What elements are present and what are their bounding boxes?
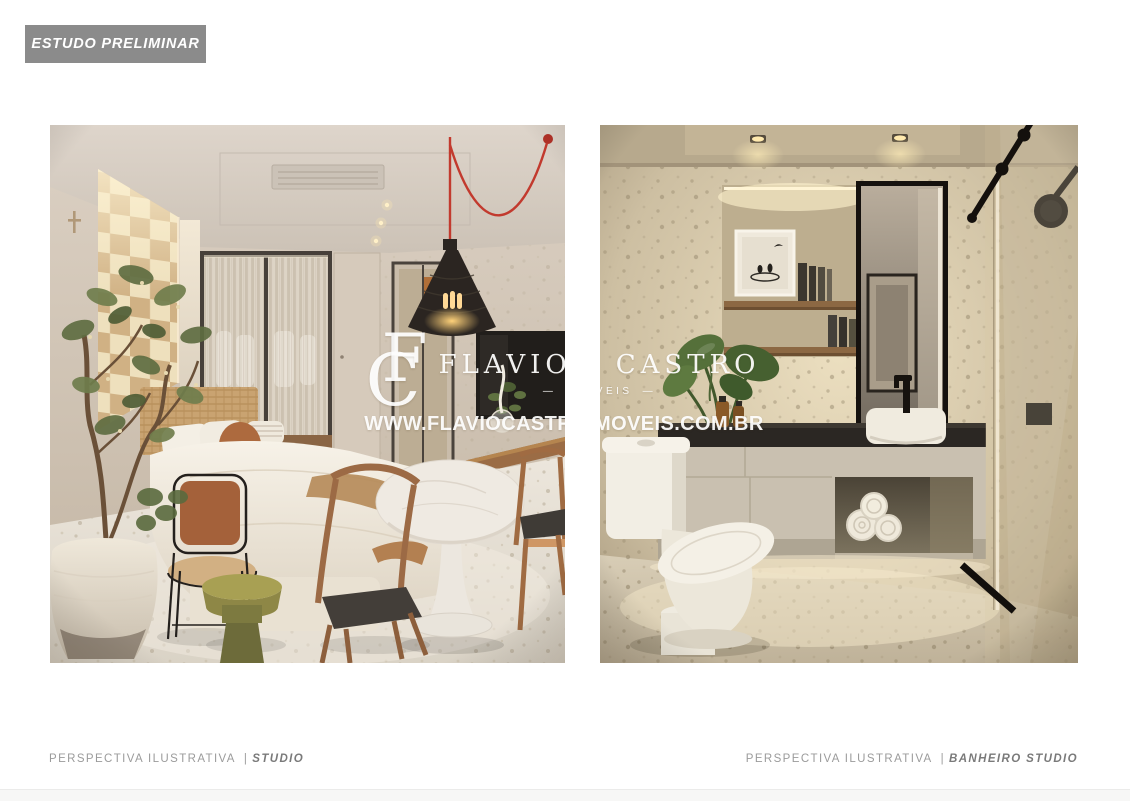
caption-separator: | (244, 753, 248, 765)
caption-prefix: PERSPECTIVA ILUSTRATIVA (746, 753, 933, 765)
bathroom-render-panel: C F FLAVIO CASTRO — IMÓVEIS — WWW.FLAVIO… (600, 125, 1078, 663)
caption-label: STUDIO (252, 753, 304, 765)
bathroom-render-illustration (600, 125, 1078, 663)
vignette-overlay (600, 125, 1078, 663)
study-stage-label: ESTUDO PRELIMINAR (31, 36, 199, 52)
studio-render-panel: C F FLAVIO CASTRO — IMÓVEIS — WWW.FLAVIO… (50, 125, 565, 663)
render-collage: C F FLAVIO CASTRO — IMÓVEIS — WWW.FLAVIO… (50, 125, 1078, 663)
study-stage-badge: ESTUDO PRELIMINAR (25, 25, 206, 63)
caption-label: BANHEIRO STUDIO (949, 753, 1078, 765)
vignette-overlay (50, 125, 565, 663)
page: { "page": { "badge_label": "ESTUDO PRELI… (0, 0, 1130, 800)
studio-render-illustration (50, 125, 565, 663)
page-bottom-strip (0, 789, 1130, 801)
caption-separator: | (941, 753, 945, 765)
caption-right: PERSPECTIVA ILUSTRATIVA|BANHEIRO STUDIO (746, 753, 1078, 765)
caption-left: PERSPECTIVA ILUSTRATIVA|STUDIO (49, 753, 304, 765)
caption-prefix: PERSPECTIVA ILUSTRATIVA (49, 753, 236, 765)
